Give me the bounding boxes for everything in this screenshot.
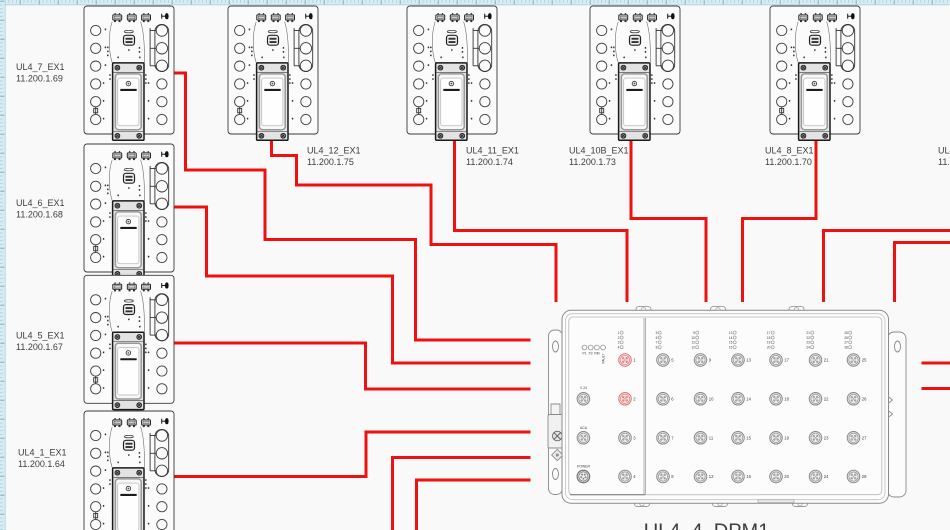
svg-text:UL4_4_DPM1: UL4_4_DPM1 [644, 520, 770, 530]
svg-text:1: 1 [618, 331, 620, 335]
svg-text:2: 2 [618, 336, 620, 340]
svg-text:14: 14 [729, 336, 733, 340]
svg-text:12: 12 [691, 346, 695, 350]
svg-text:8: 8 [656, 346, 658, 350]
svg-text:15: 15 [746, 436, 751, 441]
svg-text:11.200.1.67: 11.200.1.67 [16, 342, 63, 352]
svg-text:25: 25 [844, 331, 848, 335]
svg-text:11.200.1.74: 11.200.1.74 [466, 157, 513, 167]
svg-text:13: 13 [729, 331, 733, 335]
svg-text:11.200.1.73: 11.200.1.73 [569, 157, 616, 167]
svg-text:10: 10 [691, 336, 695, 340]
svg-text:18: 18 [784, 397, 789, 402]
svg-text:P1: P1 [582, 352, 586, 356]
svg-text:UL4_8_EX1: UL4_8_EX1 [765, 145, 814, 155]
svg-text:10: 10 [709, 397, 714, 402]
svg-text:UL4_12_EX1: UL4_12_EX1 [307, 145, 361, 155]
svg-text:18: 18 [767, 336, 771, 340]
svg-text:11: 11 [709, 436, 714, 441]
svg-text:20: 20 [767, 346, 771, 350]
svg-text:UL4_10B_EX1: UL4_10B_EX1 [569, 145, 629, 155]
svg-text:21: 21 [806, 331, 810, 335]
svg-text:14: 14 [746, 397, 751, 402]
svg-text:26: 26 [844, 336, 848, 340]
svg-text:13: 13 [746, 358, 751, 363]
svg-text:UL4_9_EX1: UL4_9_EX1 [938, 145, 950, 155]
svg-text:16: 16 [746, 474, 751, 479]
svg-text:19: 19 [767, 341, 771, 345]
svg-text:UL4_1_EX1: UL4_1_EX1 [18, 447, 67, 457]
svg-text:28: 28 [844, 346, 848, 350]
svg-text:11.200.1.70: 11.200.1.70 [765, 157, 812, 167]
svg-text:P2: P2 [589, 352, 593, 356]
svg-text:11.200.1.64: 11.200.1.64 [18, 459, 65, 469]
svg-text:6: 6 [656, 336, 658, 340]
svg-text:RM: RM [594, 352, 599, 356]
svg-text:9: 9 [693, 331, 695, 335]
svg-text:19: 19 [784, 436, 789, 441]
svg-text:5: 5 [656, 331, 658, 335]
svg-text:11.200.1.69: 11.200.1.69 [16, 73, 63, 83]
svg-text:UL4_5_EX1: UL4_5_EX1 [16, 330, 65, 340]
svg-text:15: 15 [729, 341, 733, 345]
svg-text:UL4_6_EX1: UL4_6_EX1 [16, 198, 65, 208]
svg-text:11.200.1.71: 11.200.1.71 [938, 157, 950, 167]
svg-text:V 24: V 24 [580, 386, 587, 390]
svg-text:FAULT: FAULT [602, 353, 606, 363]
svg-text:UL4_11_EX1: UL4_11_EX1 [466, 145, 519, 155]
svg-text:22: 22 [824, 397, 829, 402]
svg-text:24: 24 [806, 346, 810, 350]
svg-text:20: 20 [784, 474, 789, 479]
svg-text:21: 21 [824, 358, 829, 363]
svg-text:24: 24 [824, 474, 829, 479]
svg-text:25: 25 [862, 358, 867, 363]
svg-text:11.200.1.75: 11.200.1.75 [307, 157, 354, 167]
svg-text:22: 22 [806, 336, 810, 340]
svg-text:27: 27 [844, 341, 848, 345]
svg-text:7: 7 [656, 341, 658, 345]
svg-text:ACA: ACA [580, 426, 588, 430]
svg-text:27: 27 [862, 436, 867, 441]
svg-text:12: 12 [709, 474, 714, 479]
svg-text:4: 4 [618, 346, 620, 350]
svg-text:23: 23 [824, 436, 829, 441]
svg-text:16: 16 [729, 346, 733, 350]
svg-text:UL4_7_EX1: UL4_7_EX1 [16, 62, 65, 72]
svg-text:26: 26 [862, 397, 867, 402]
svg-text:17: 17 [767, 331, 771, 335]
svg-text:17: 17 [784, 358, 789, 363]
svg-text:23: 23 [806, 341, 810, 345]
svg-text:3: 3 [618, 341, 620, 345]
svg-text:POWER: POWER [577, 465, 590, 469]
svg-text:28: 28 [862, 474, 867, 479]
svg-text:11: 11 [692, 341, 696, 345]
svg-text:11.200.1.68: 11.200.1.68 [16, 209, 63, 219]
